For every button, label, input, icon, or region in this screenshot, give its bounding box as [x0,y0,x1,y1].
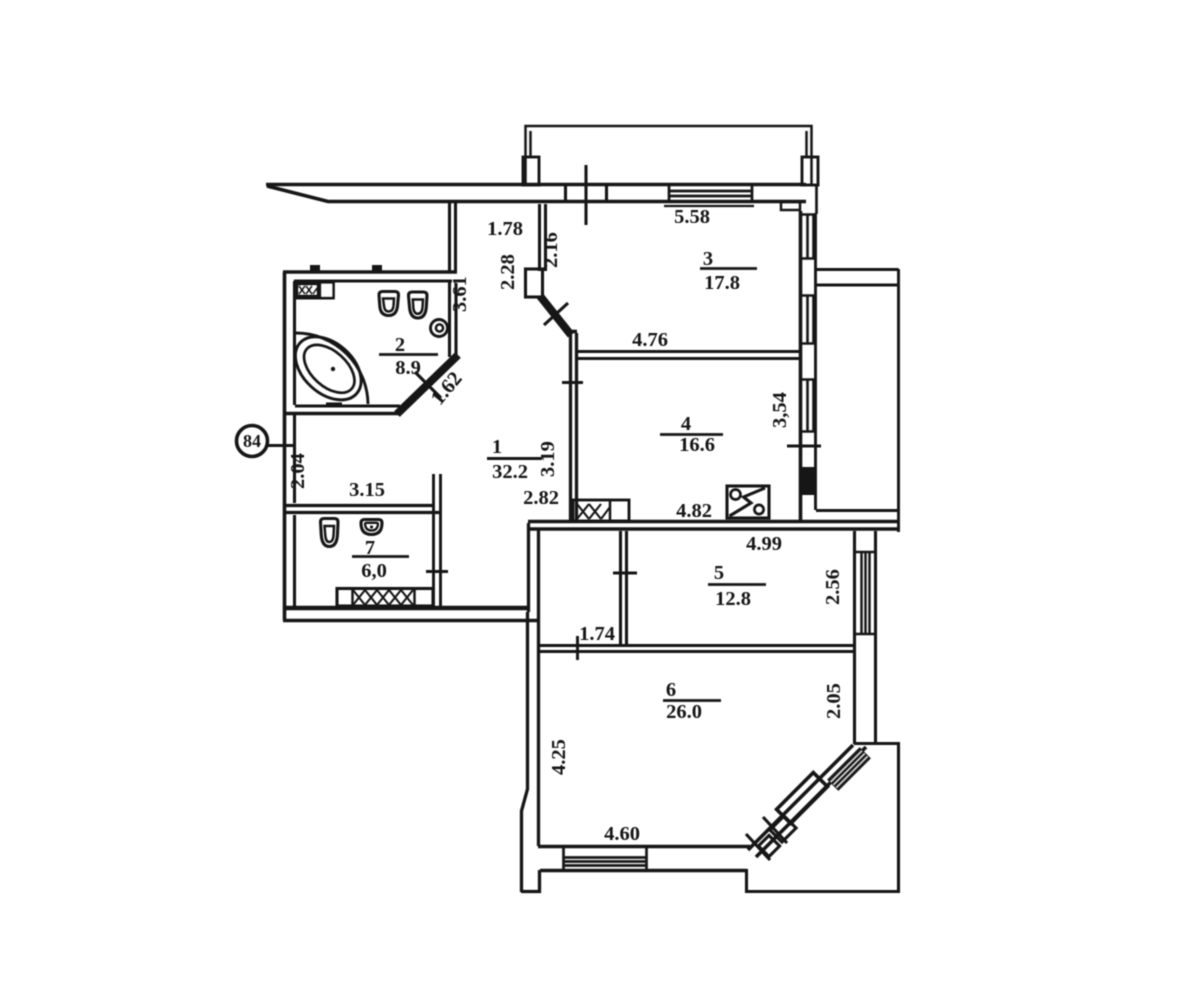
svg-text:1.78: 1.78 [487,218,523,240]
svg-text:84: 84 [243,431,261,451]
svg-text:3.61: 3.61 [449,276,471,312]
svg-text:6: 6 [666,679,676,701]
svg-text:2: 2 [395,334,405,356]
svg-text:2.28: 2.28 [497,254,519,290]
svg-text:4.99: 4.99 [746,533,782,555]
svg-text:6,0: 6,0 [361,560,387,582]
svg-text:17.8: 17.8 [704,272,740,294]
svg-text:5.58: 5.58 [674,206,710,228]
svg-text:26.0: 26.0 [666,701,702,723]
svg-text:4.60: 4.60 [604,823,640,845]
svg-text:4.76: 4.76 [632,329,668,351]
svg-text:5: 5 [714,562,724,584]
svg-text:2.16: 2.16 [540,232,562,268]
svg-text:2.04: 2.04 [287,453,309,489]
svg-text:3: 3 [703,248,713,270]
svg-text:2.82: 2.82 [523,487,559,509]
svg-text:3.15: 3.15 [349,479,385,501]
svg-text:16.6: 16.6 [679,434,715,456]
svg-text:4.82: 4.82 [676,500,712,522]
svg-text:8.9: 8.9 [395,357,421,379]
svg-text:1.74: 1.74 [579,623,615,645]
svg-text:1: 1 [492,436,502,458]
svg-text:32.2: 32.2 [492,461,528,483]
svg-text:2.56: 2.56 [822,569,844,605]
svg-text:3.19: 3.19 [537,441,559,477]
svg-text:12.8: 12.8 [715,588,751,610]
svg-text:4.25: 4.25 [548,739,570,775]
svg-text:2.05: 2.05 [823,683,845,719]
svg-text:3,54: 3,54 [769,392,791,428]
svg-text:4: 4 [681,413,691,435]
